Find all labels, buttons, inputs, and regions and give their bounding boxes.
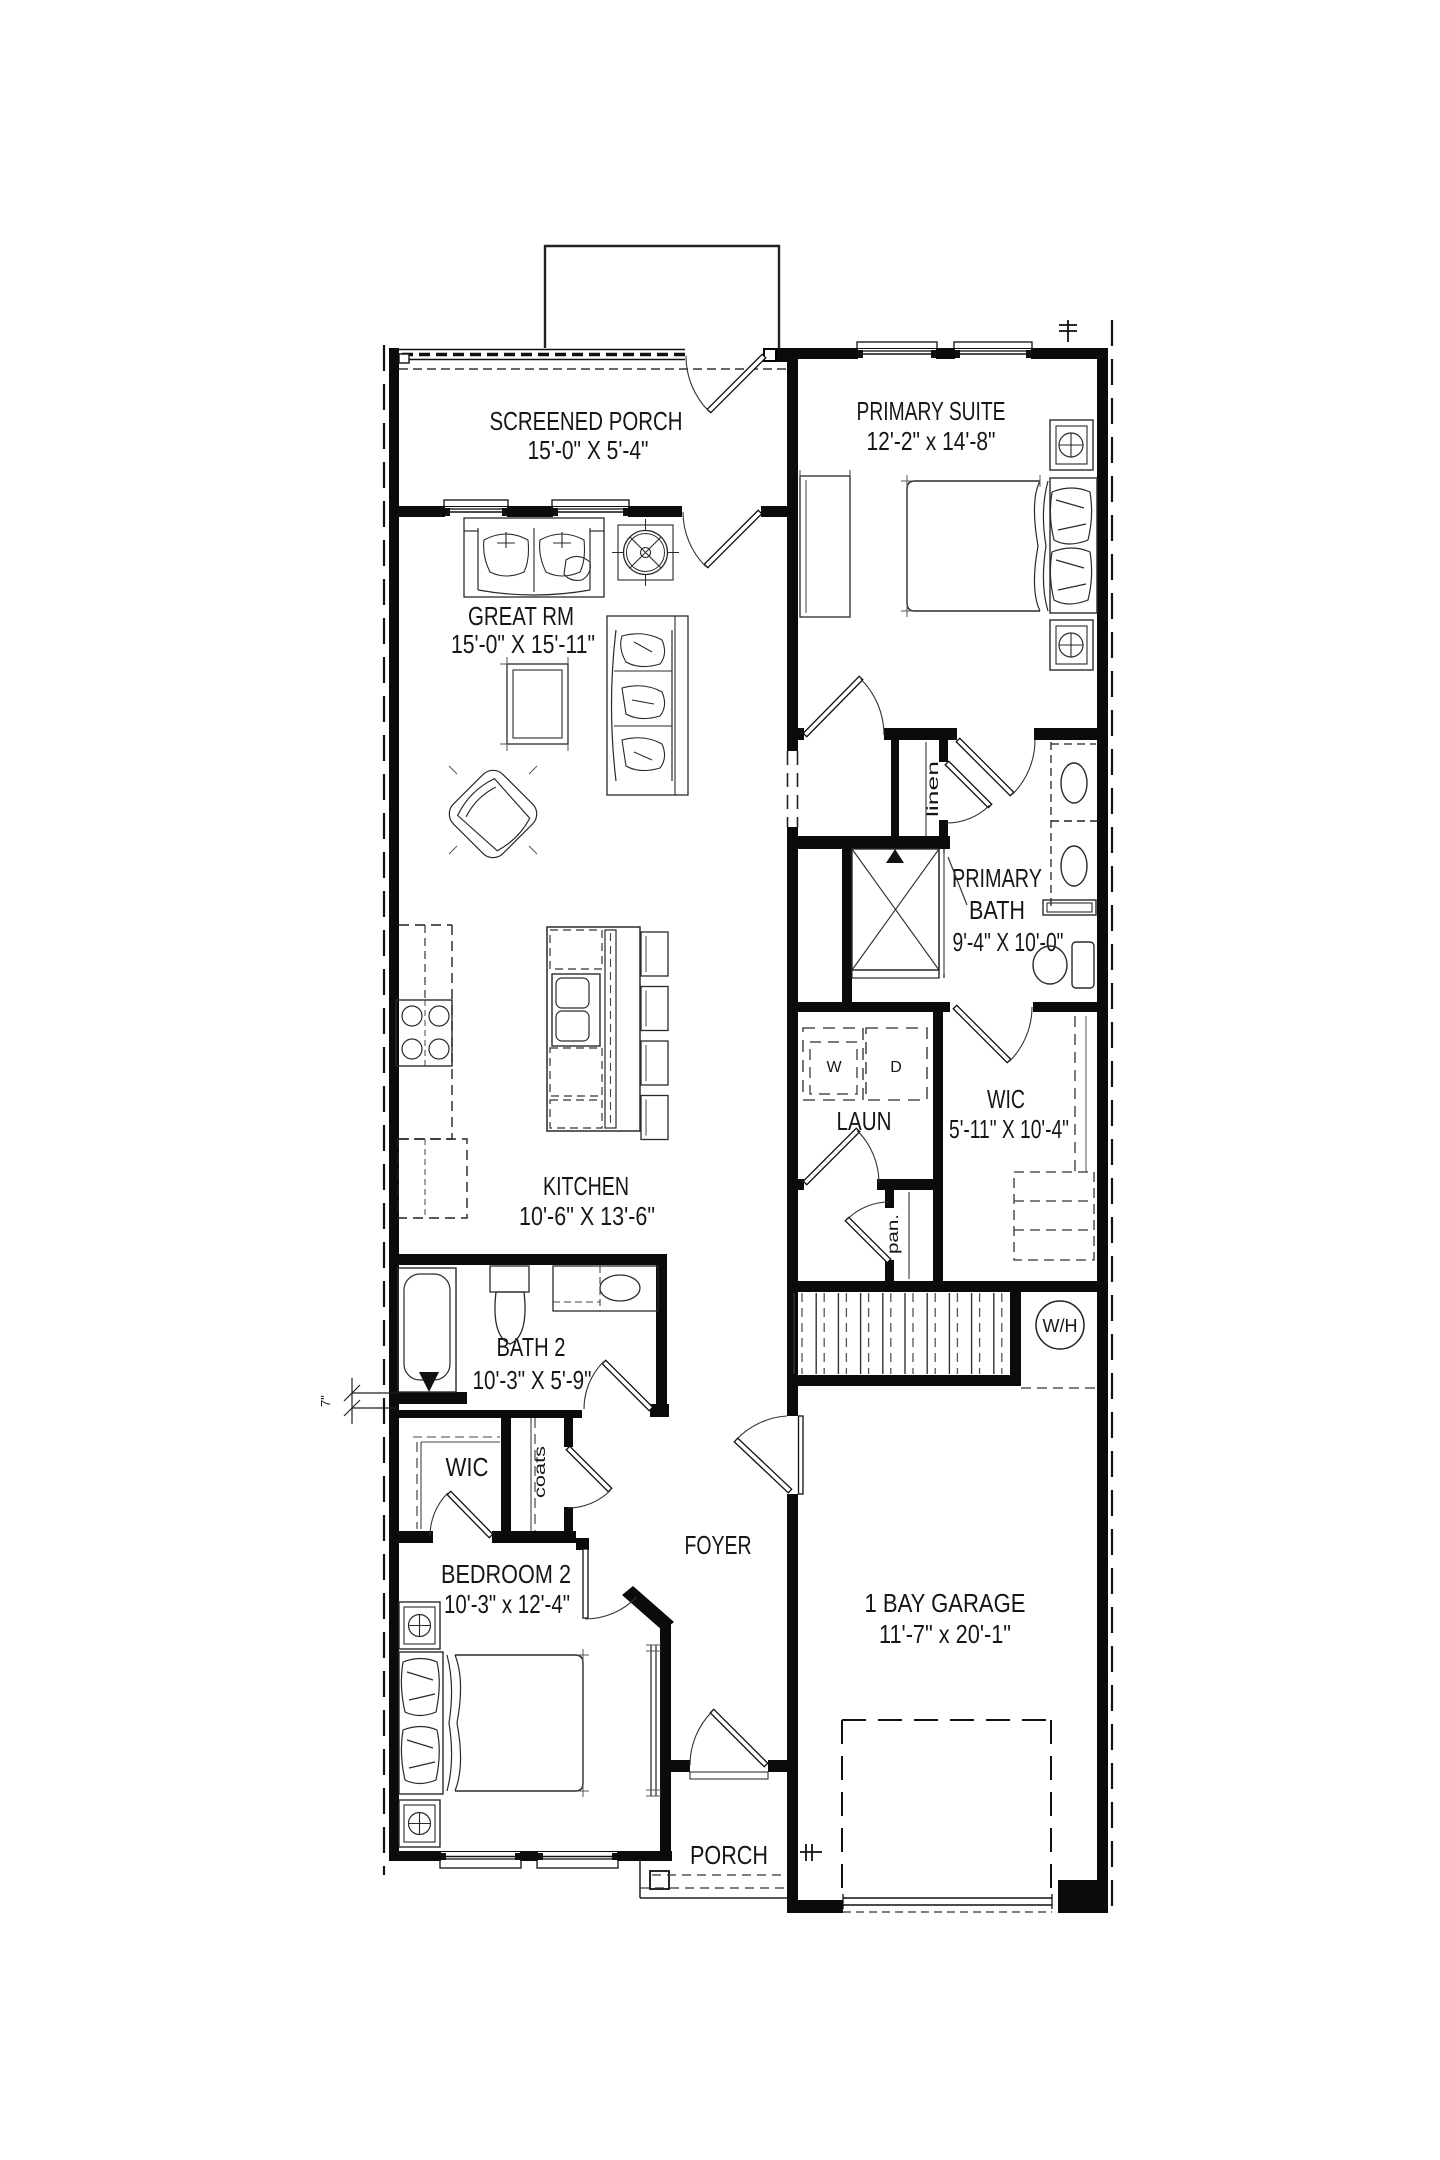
svg-text:GREAT RM: GREAT RM <box>468 601 574 631</box>
svg-text:1 BAY GARAGE: 1 BAY GARAGE <box>865 1588 1026 1618</box>
svg-text:5'-11" X 10'-4": 5'-11" X 10'-4" <box>949 1114 1069 1144</box>
svg-text:BATH: BATH <box>969 895 1025 925</box>
svg-text:WIC: WIC <box>987 1084 1025 1114</box>
svg-text:10'-3" X 5'-9": 10'-3" X 5'-9" <box>473 1365 592 1395</box>
svg-text:FOYER: FOYER <box>685 1530 752 1560</box>
svg-text:15'-0" X 15'-11": 15'-0" X 15'-11" <box>451 629 595 659</box>
svg-text:PRIMARY SUITE: PRIMARY SUITE <box>857 396 1006 426</box>
svg-text:W: W <box>826 1059 842 1076</box>
svg-text:10'-3" x 12'-4": 10'-3" x 12'-4" <box>444 1589 570 1619</box>
svg-text:WIC: WIC <box>446 1452 489 1482</box>
svg-text:PRIMARY: PRIMARY <box>952 863 1042 893</box>
svg-text:12'-2" x 14'-8": 12'-2" x 14'-8" <box>867 426 996 456</box>
svg-text:11'-7" x 20'-1": 11'-7" x 20'-1" <box>879 1619 1011 1649</box>
svg-text:BATH 2: BATH 2 <box>497 1332 566 1362</box>
svg-text:15'-0" X 5'-4": 15'-0" X 5'-4" <box>528 435 649 465</box>
svg-text:D: D <box>890 1059 902 1076</box>
svg-text:9'-4" X 10'-0": 9'-4" X 10'-0" <box>953 927 1064 957</box>
svg-text:linen: linen <box>925 761 942 817</box>
svg-text:7": 7" <box>318 1395 333 1407</box>
svg-text:PORCH: PORCH <box>690 1840 768 1870</box>
svg-text:BEDROOM 2: BEDROOM 2 <box>441 1559 571 1589</box>
svg-text:W/H: W/H <box>1043 1316 1078 1336</box>
svg-text:SCREENED PORCH: SCREENED PORCH <box>490 406 683 436</box>
svg-text:LAUN: LAUN <box>837 1106 892 1136</box>
svg-text:KITCHEN: KITCHEN <box>543 1171 629 1201</box>
svg-text:pan.: pan. <box>885 1214 902 1254</box>
svg-text:10'-6" X 13'-6": 10'-6" X 13'-6" <box>519 1201 655 1231</box>
